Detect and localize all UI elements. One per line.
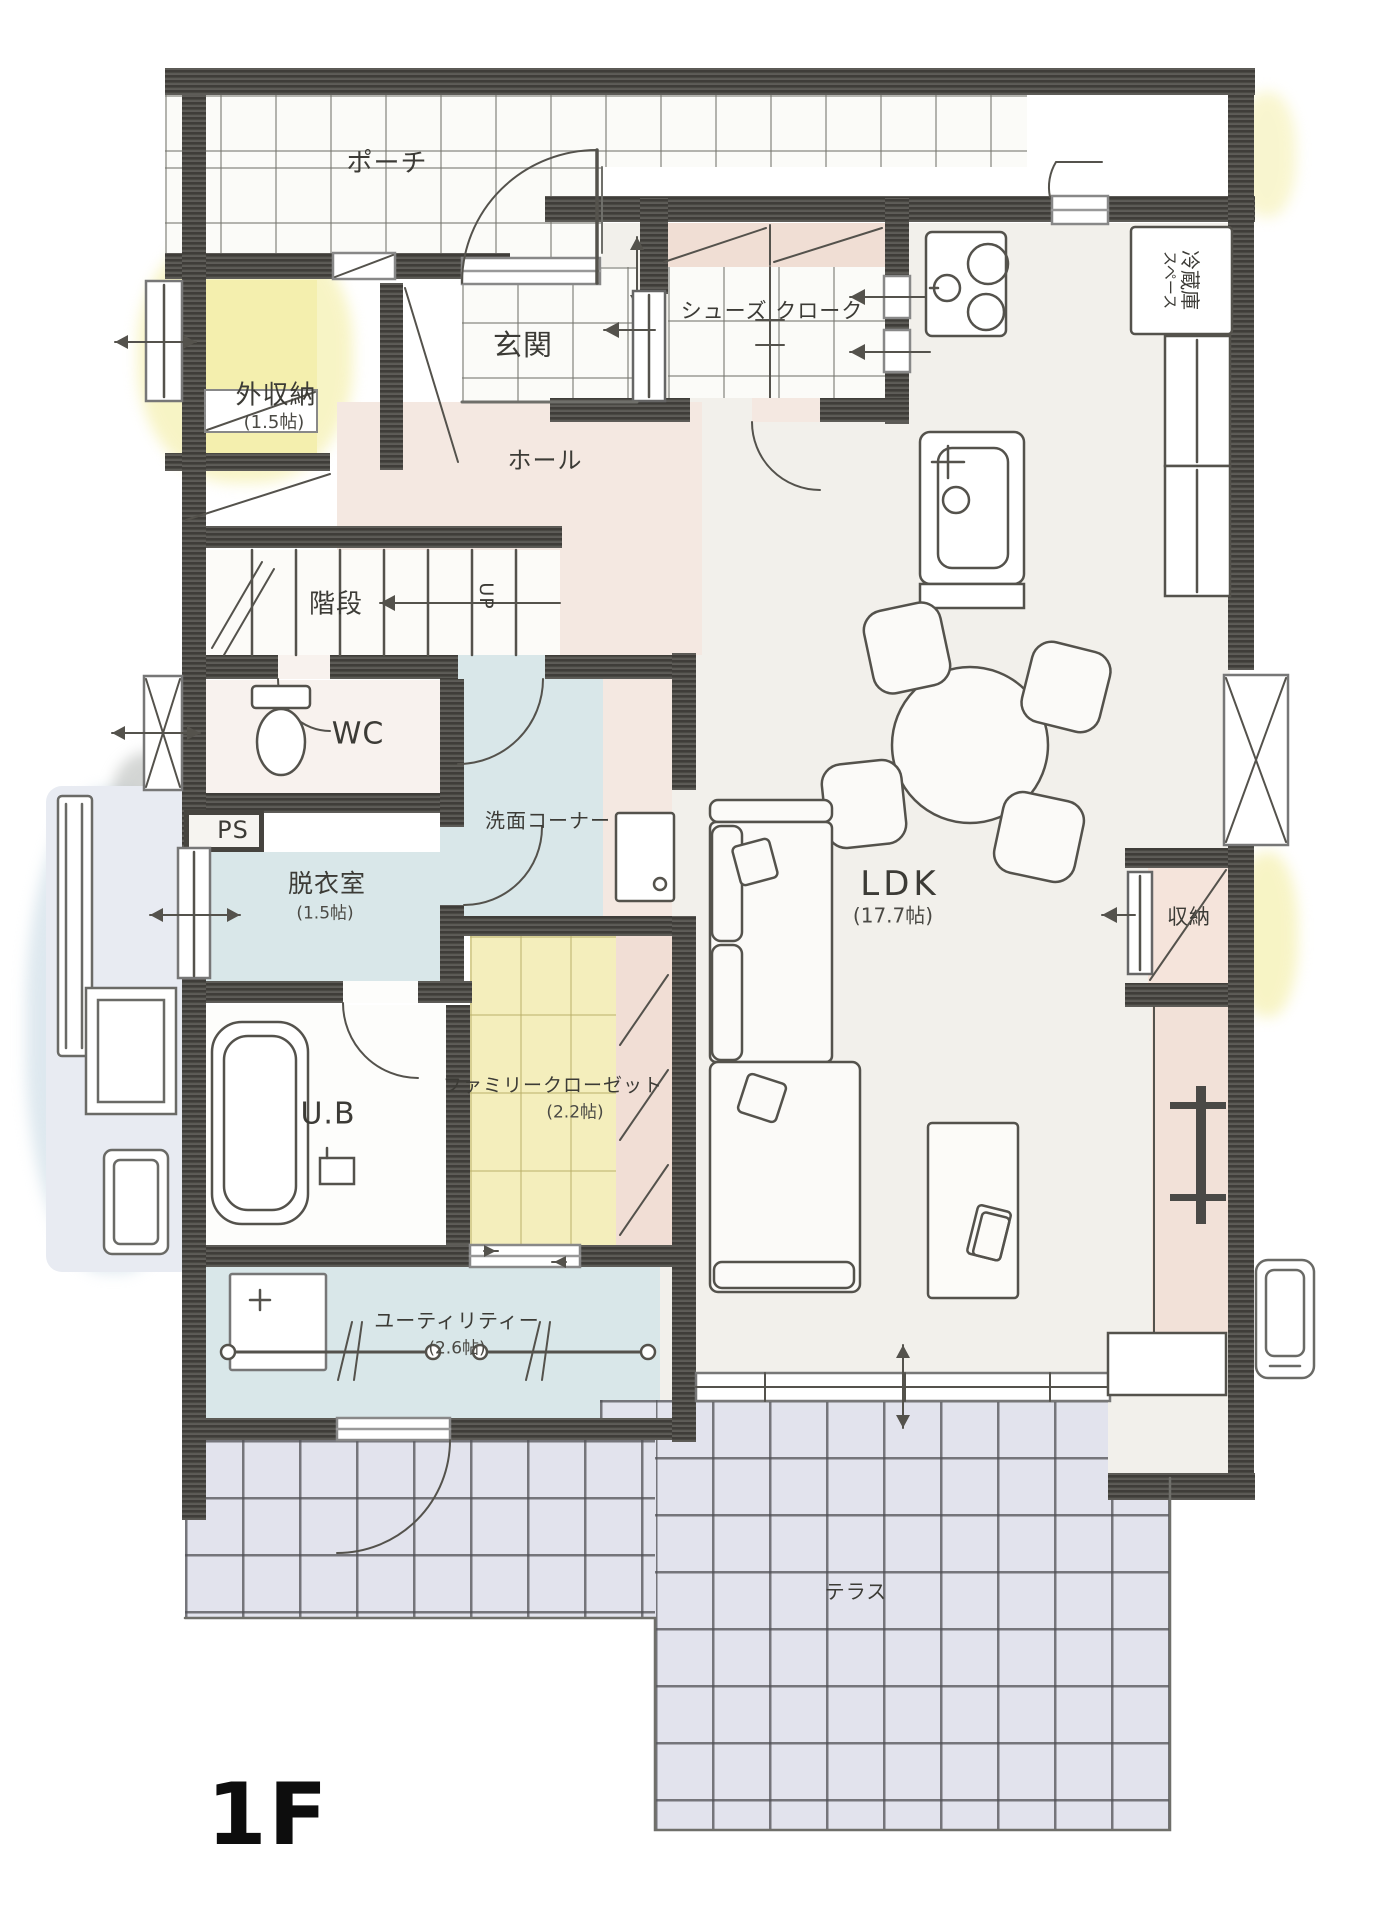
refrigerator-line2: スペース xyxy=(1161,250,1178,310)
floor-title: 1F xyxy=(207,1765,330,1865)
wall xyxy=(440,678,464,827)
room-label-terrace: テラス xyxy=(825,1576,888,1605)
wall xyxy=(640,198,668,294)
wall xyxy=(1125,848,1228,868)
wall xyxy=(885,198,909,424)
room-label-exterior-storage: 外収納 xyxy=(235,375,316,412)
wall xyxy=(182,977,206,1520)
wall xyxy=(182,1245,470,1267)
wall xyxy=(330,655,458,679)
window-ldk-right xyxy=(1224,675,1288,845)
room-terrace xyxy=(655,1400,1170,1830)
room-shoe-closet-tiles xyxy=(668,265,886,398)
room-label-family-closet: ファミリークローゼット xyxy=(443,1071,663,1098)
wall xyxy=(1228,845,1254,1500)
shoe-closet-shelf xyxy=(658,223,886,267)
room-label-stairs: 階段 xyxy=(309,584,363,621)
wall xyxy=(450,1418,696,1440)
room-label-dressing: 脱衣室 xyxy=(288,864,366,900)
room-label-ps: PS xyxy=(217,816,249,844)
room-porch-tiles xyxy=(165,95,1027,167)
room-label-hall: ホール xyxy=(508,441,583,476)
room-size-ldk: (17.7帖) xyxy=(853,900,933,929)
room-label-shoe-closet: シューズ クローク xyxy=(681,295,864,325)
wall xyxy=(165,68,1255,95)
wall xyxy=(550,398,690,422)
wall xyxy=(672,1267,696,1442)
corridor-pink xyxy=(603,678,672,918)
room-label-ldk: LDK xyxy=(860,864,939,904)
room-terrace xyxy=(185,1440,655,1618)
equipment-pad xyxy=(46,786,196,1272)
room-size-family-closet: (2.2帖) xyxy=(546,1098,603,1123)
wall xyxy=(380,283,403,470)
wall xyxy=(545,196,1055,222)
wall xyxy=(182,981,343,1003)
wall xyxy=(820,398,909,422)
wall xyxy=(446,1005,470,1245)
wall xyxy=(1228,95,1254,670)
room-label-refrigerator: 冷蔵庫 スペース xyxy=(1161,250,1201,310)
room-porch-tiles xyxy=(165,167,602,267)
room-label-utility: ユーティリティー xyxy=(374,1305,540,1334)
wall xyxy=(182,526,562,548)
wall xyxy=(672,916,696,1267)
room-size-dressing: (1.5帖) xyxy=(296,899,353,924)
room-stairs-floor xyxy=(204,550,560,657)
wall xyxy=(672,653,696,790)
room-size-utility: (2.6帖) xyxy=(428,1334,485,1359)
refrigerator-line1: 冷蔵庫 xyxy=(1178,250,1201,310)
house-nook-floor xyxy=(1108,1395,1228,1475)
room-wc-floor xyxy=(206,680,440,793)
wall xyxy=(440,916,696,936)
tv-board xyxy=(1152,1007,1230,1333)
room-label-entrance: 玄関 xyxy=(493,322,553,364)
room-label-unit-bath: U.B xyxy=(300,1097,355,1132)
kitchen-back-door xyxy=(1049,162,1108,224)
wall xyxy=(440,905,464,981)
wall xyxy=(418,981,472,1003)
stairs-up-label: UP xyxy=(475,582,497,609)
room-washroom-corner-floor xyxy=(464,678,603,918)
room-label-wc: WC xyxy=(332,717,385,752)
floorplan-1f: ポーチ 玄関 シューズ クローク 外収納 (1.5帖) ホール 階段 UP WC… xyxy=(0,0,1395,1909)
room-size-exterior-storage: (1.5帖) xyxy=(244,408,305,434)
room-label-washroom-corner: 洗面コーナー xyxy=(485,805,611,834)
wall xyxy=(395,253,510,279)
room-label-storage: 収納 xyxy=(1167,901,1211,931)
ac-outdoor-unit xyxy=(1256,1260,1314,1378)
room-label-porch: ポーチ xyxy=(346,143,427,180)
wall xyxy=(182,95,206,852)
wall xyxy=(1125,983,1228,1007)
